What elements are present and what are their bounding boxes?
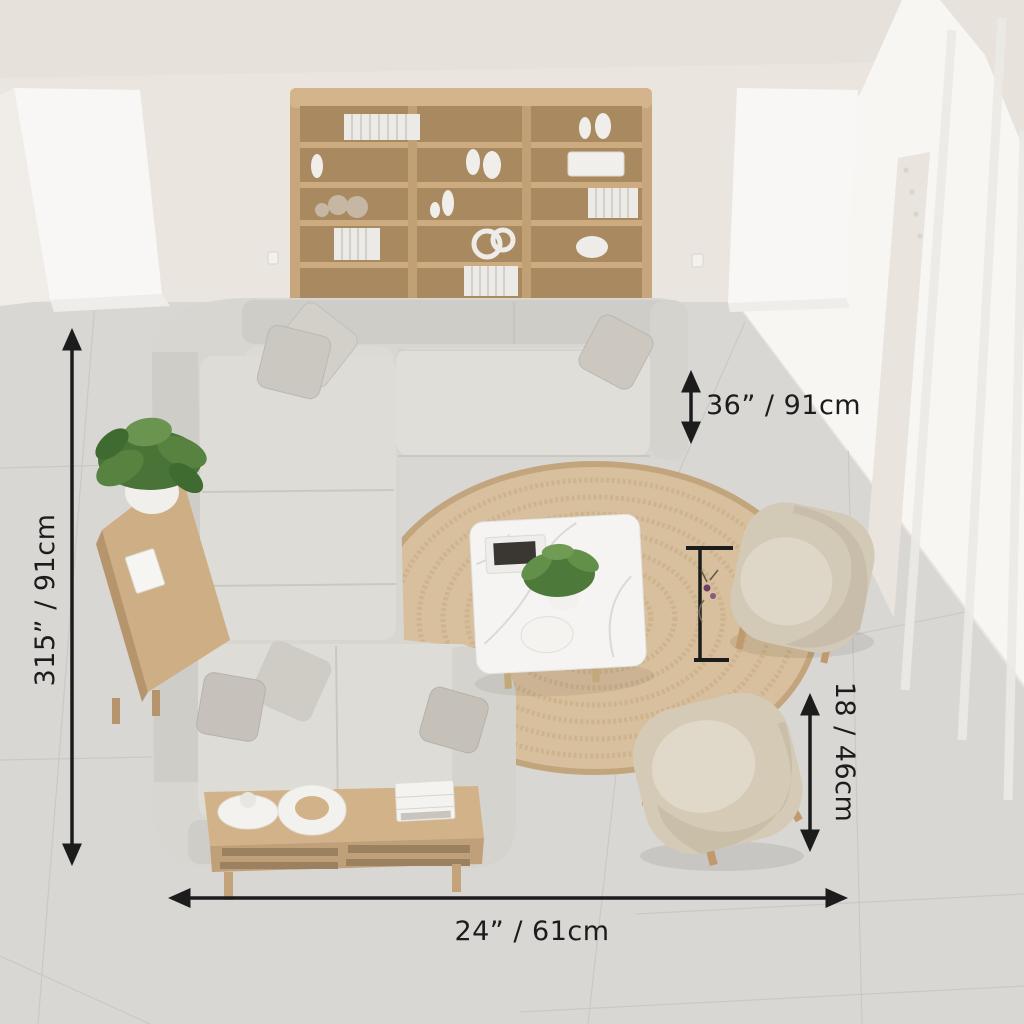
dimension-label-bottom-width: 24” / 61cm (454, 916, 609, 947)
wood-table-leg (452, 864, 461, 892)
ring-vase (278, 785, 346, 835)
console-leg (152, 690, 160, 716)
book-stack-row1 (344, 114, 420, 140)
book-stack (395, 780, 455, 821)
books-row4-left (334, 228, 380, 260)
coffee-table-white (466, 513, 655, 700)
vase-row2-left (311, 154, 323, 178)
sofa-arm-right (650, 300, 688, 460)
box-row2-right (568, 152, 624, 176)
pillow (195, 671, 267, 743)
books-row5-mid (464, 266, 518, 296)
console-leg (112, 698, 120, 724)
bookshelf (290, 88, 652, 312)
furniture-dimension-diagram: 315” / 91cm 36” / 91cm 18 / 46cm 24” / 6… (0, 0, 1024, 1024)
window-back (728, 88, 858, 312)
wall-outlet-left (268, 252, 278, 264)
decor-object-row4 (576, 236, 608, 258)
wall-outlet-right (692, 254, 703, 267)
bookshelf-top-edge (290, 88, 652, 108)
wood-table-leg (224, 872, 233, 900)
sofa-seat-left (200, 356, 396, 640)
scene-canvas: 315” / 91cm 36” / 91cm 18 / 46cm 24” / 6… (0, 0, 1024, 1024)
dimension-label-sofa-height: 36” / 91cm (706, 390, 861, 421)
books-row3-right (588, 188, 638, 218)
dimension-label-side-height: 18 / 46cm (829, 682, 860, 823)
dimension-label-left-height: 315” / 91cm (30, 514, 61, 687)
window-back-glass (728, 88, 858, 303)
